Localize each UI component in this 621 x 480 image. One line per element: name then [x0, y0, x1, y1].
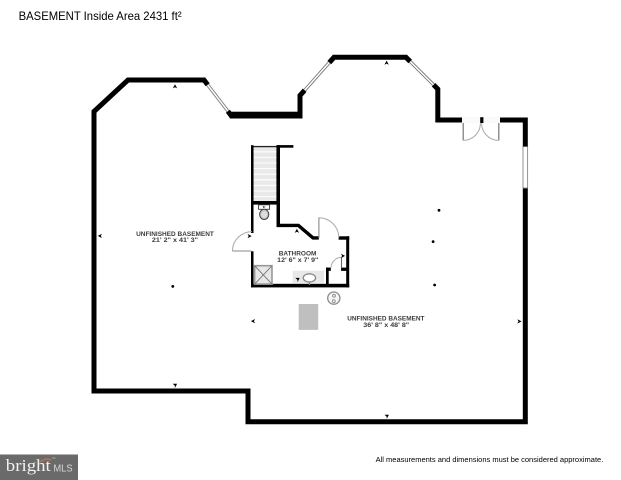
- svg-text:™: ™: [52, 456, 56, 461]
- svg-text:12' 6" x 7' 9": 12' 6" x 7' 9": [277, 257, 318, 264]
- svg-text:All measurements and dimension: All measurements and dimensions must be …: [376, 455, 604, 464]
- svg-text:36' 8" x 48' 8": 36' 8" x 48' 8": [363, 322, 409, 329]
- svg-text:MLS: MLS: [53, 464, 73, 475]
- svg-text:BASEMENT Inside Area 2431 ft²: BASEMENT Inside Area 2431 ft²: [19, 9, 182, 23]
- svg-text:21' 2" x 41' 3": 21' 2" x 41' 3": [152, 237, 198, 244]
